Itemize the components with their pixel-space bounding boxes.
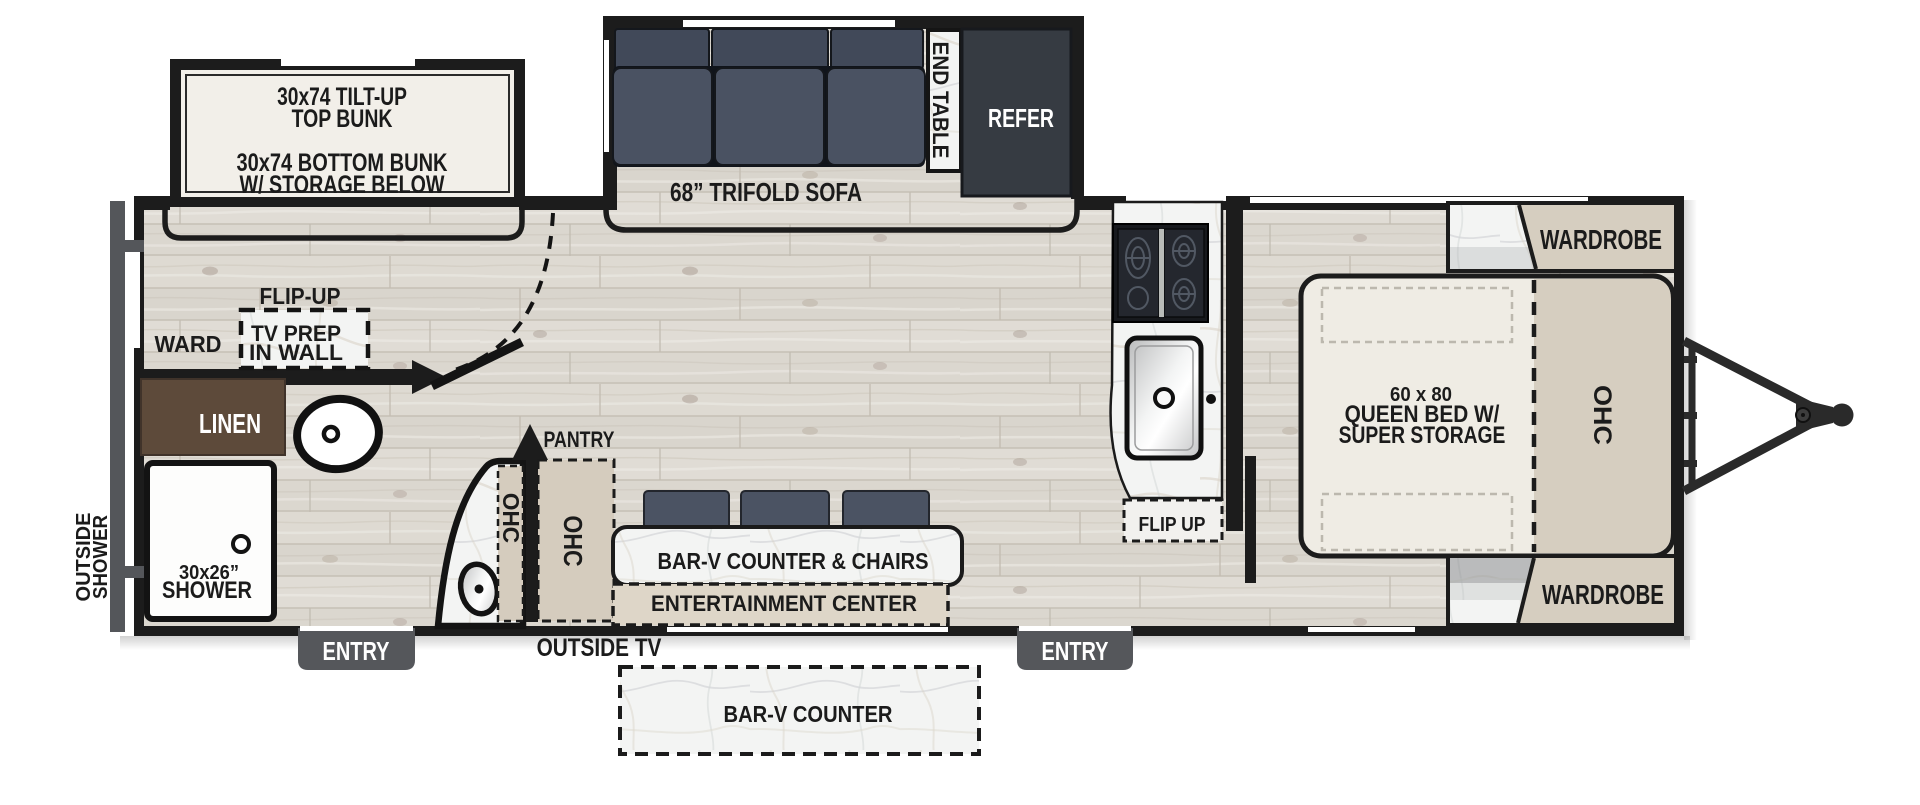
svg-text:TOP BUNK: TOP BUNK — [292, 105, 393, 133]
svg-text:W/ STORAGE BELOW: W/ STORAGE BELOW — [240, 171, 446, 199]
svg-text:SHOWER: SHOWER — [162, 576, 252, 603]
svg-text:OHC: OHC — [1588, 385, 1615, 445]
svg-text:END TABLE: END TABLE — [928, 42, 953, 159]
svg-text:ENTERTAINMENT CENTER: ENTERTAINMENT CENTER — [651, 591, 917, 616]
svg-text:WARDROBE: WARDROBE — [1542, 580, 1664, 611]
svg-text:LINEN: LINEN — [199, 409, 261, 440]
svg-text:BAR-V COUNTER: BAR-V COUNTER — [724, 701, 893, 728]
svg-text:OUTSIDE TV: OUTSIDE TV — [537, 633, 663, 661]
svg-text:SUPER STORAGE: SUPER STORAGE — [1339, 421, 1506, 449]
svg-text:OHC: OHC — [558, 515, 587, 566]
svg-text:FLIP-UP: FLIP-UP — [260, 283, 341, 309]
svg-text:WARDROBE: WARDROBE — [1540, 225, 1662, 256]
svg-text:IN WALL: IN WALL — [249, 340, 343, 364]
svg-text:FLIP UP: FLIP UP — [1139, 514, 1206, 536]
svg-text:68” TRIFOLD SOFA: 68” TRIFOLD SOFA — [670, 179, 862, 208]
svg-text:ENTRY: ENTRY — [1042, 636, 1109, 665]
svg-text:ENTRY: ENTRY — [323, 636, 390, 665]
svg-text:BAR-V COUNTER & CHAIRS: BAR-V COUNTER & CHAIRS — [657, 548, 928, 575]
svg-text:OHC: OHC — [498, 493, 524, 543]
svg-text:WARD: WARD — [155, 331, 222, 357]
svg-text:SHOWER: SHOWER — [89, 515, 112, 599]
svg-text:REFER: REFER — [988, 103, 1054, 133]
svg-text:PANTRY: PANTRY — [544, 428, 615, 452]
